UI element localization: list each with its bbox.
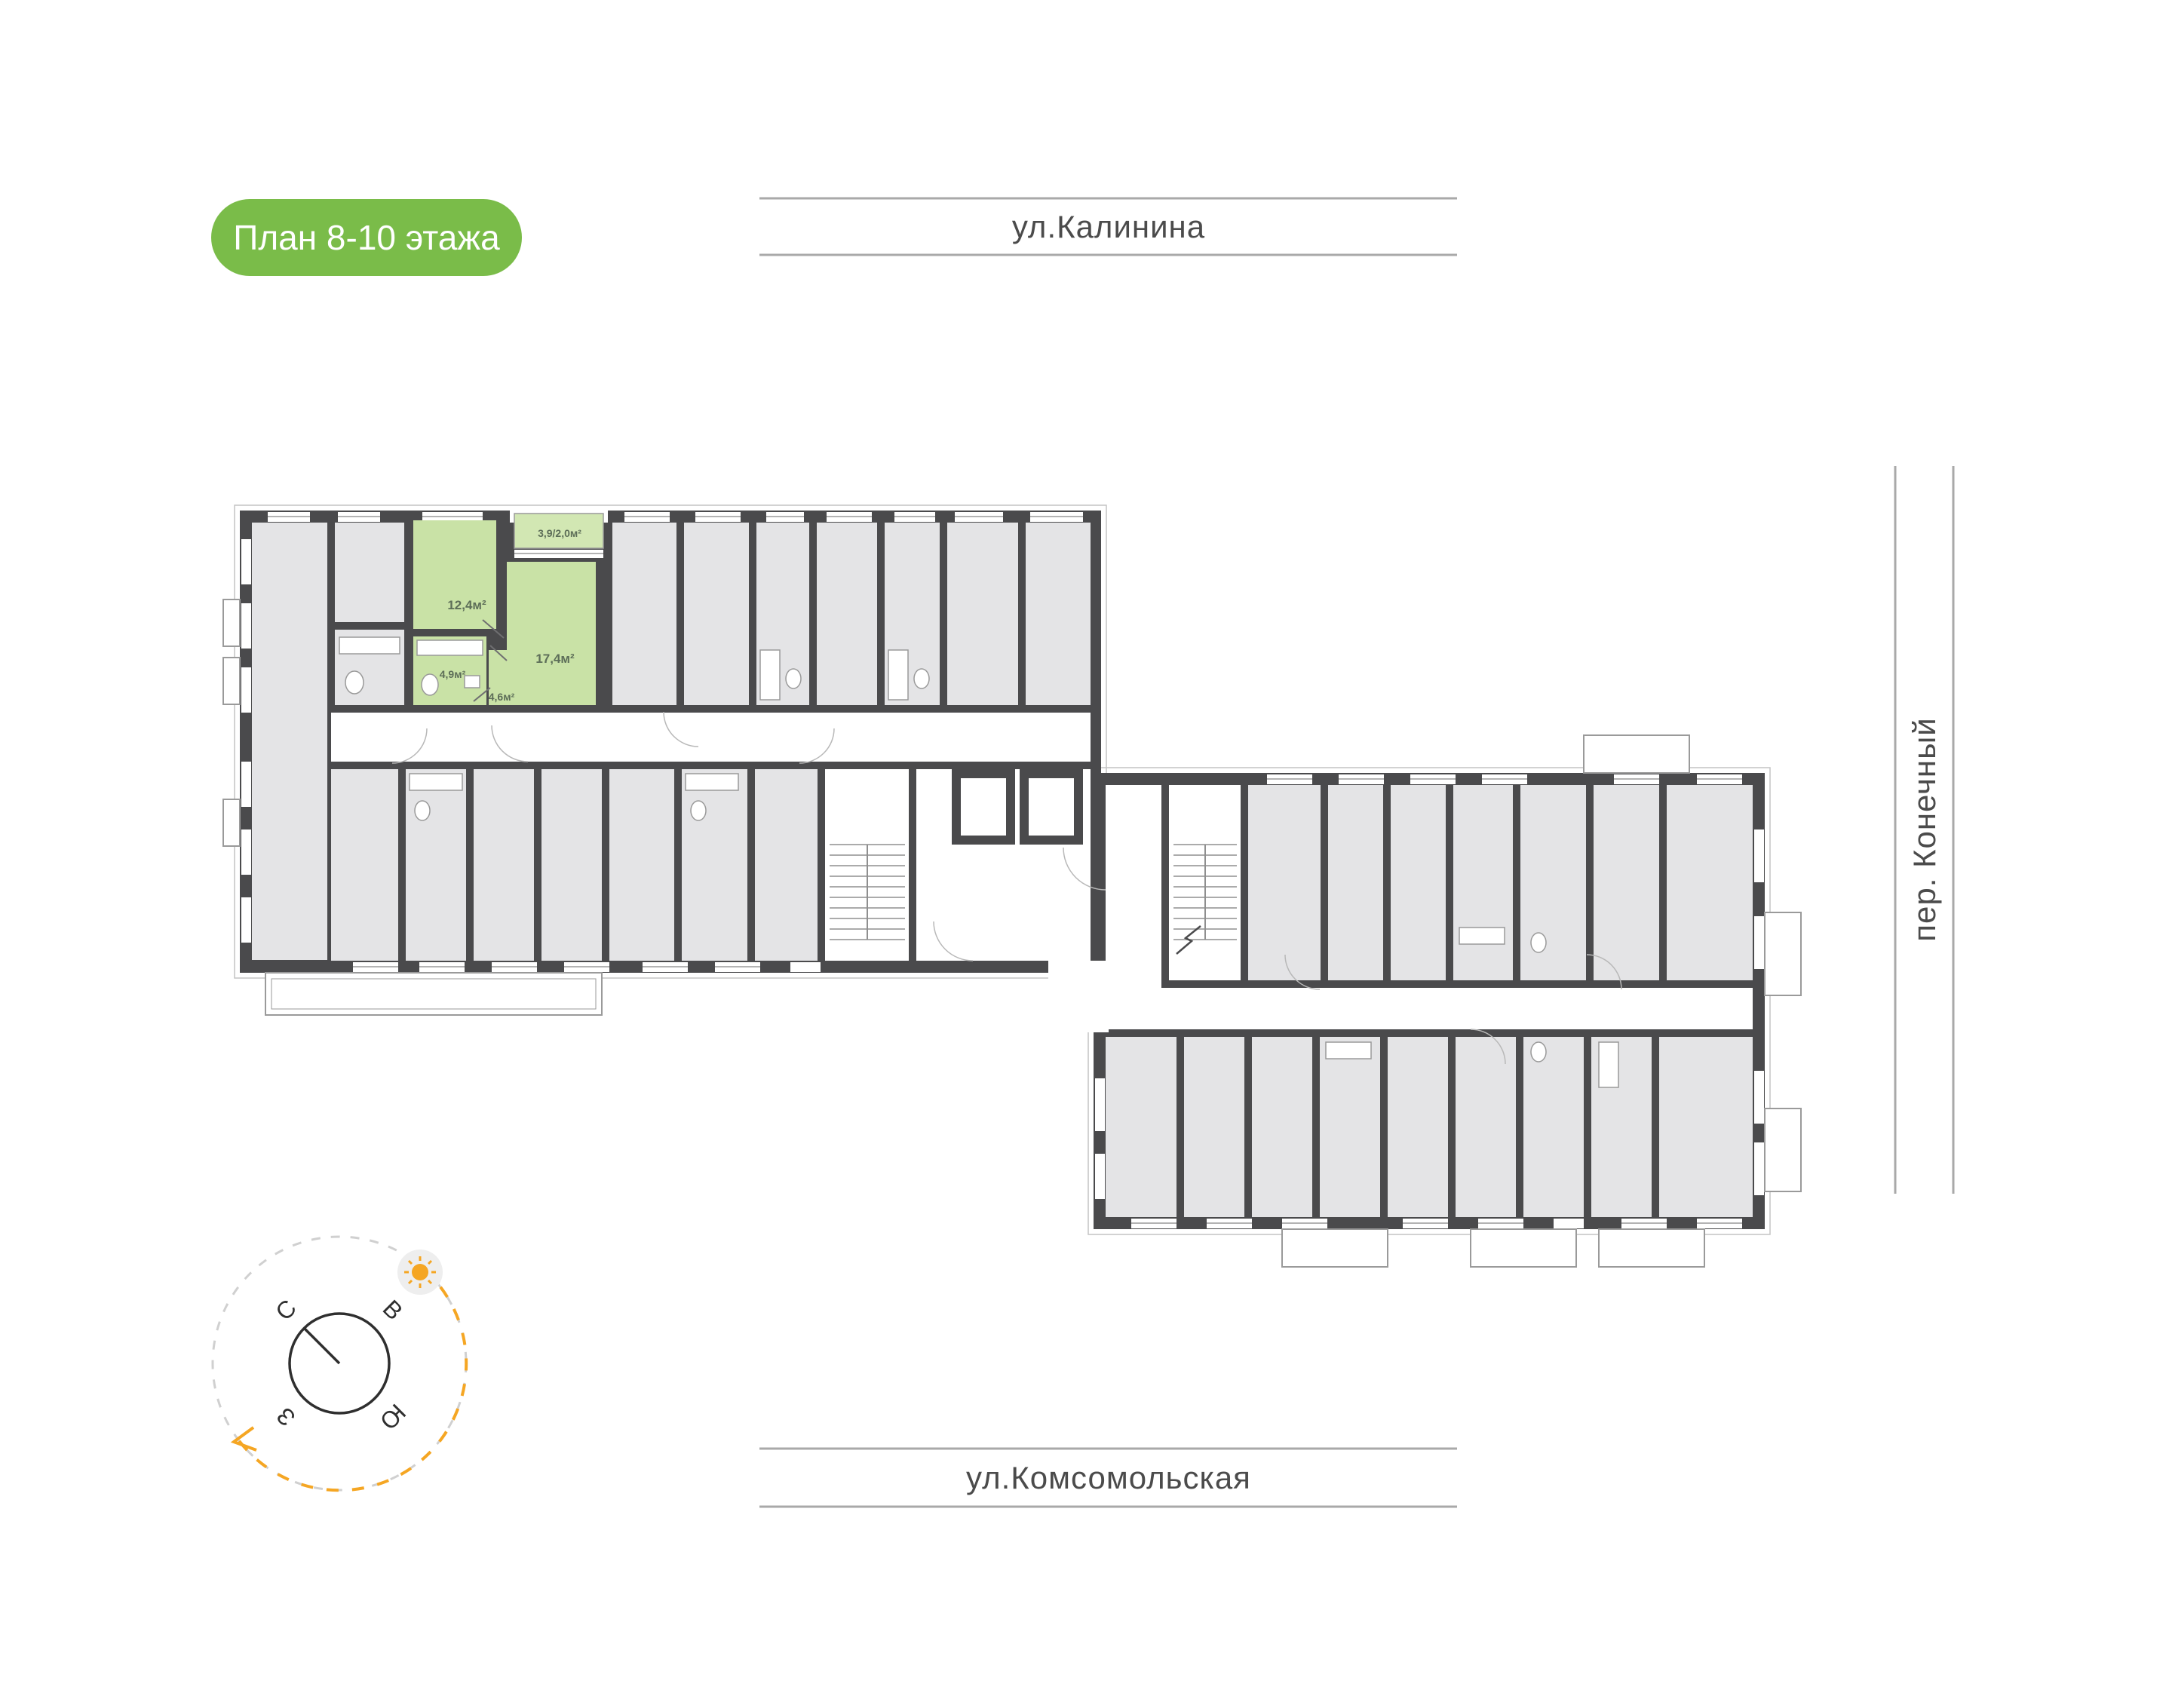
room	[1026, 523, 1091, 705]
room	[1456, 1037, 1516, 1217]
room	[1667, 785, 1753, 980]
left-corridor	[331, 713, 1091, 762]
elevator-cab	[961, 778, 1006, 836]
room	[817, 523, 877, 705]
balcony	[1471, 1229, 1576, 1267]
balcony	[1765, 912, 1801, 995]
room	[1320, 1037, 1380, 1217]
room	[947, 523, 1018, 705]
balcony	[1765, 1109, 1801, 1191]
bathtub	[1599, 1042, 1618, 1087]
street-komsomolskaya-label: ул.Комсомольская	[966, 1460, 1251, 1495]
balcony	[223, 599, 240, 646]
toilet	[786, 669, 801, 688]
room	[1184, 1037, 1244, 1217]
room	[1106, 1037, 1176, 1217]
lobby-passage	[1048, 961, 1109, 1032]
room	[1594, 785, 1659, 980]
room	[252, 523, 327, 960]
street-kalinina: ул.Калинина	[759, 198, 1457, 255]
room-area-label: 12,4м²	[447, 598, 486, 612]
balcony	[223, 799, 240, 846]
room	[684, 523, 749, 705]
room	[1328, 785, 1383, 980]
toilet	[415, 801, 430, 820]
room	[1520, 785, 1586, 980]
toilet	[914, 669, 929, 688]
bathtub	[1326, 1042, 1371, 1059]
room-area-label: 4,6м²	[489, 691, 515, 703]
room-area-label: 4,9м²	[440, 668, 466, 680]
unit-room-living	[413, 520, 496, 629]
floor-badge-label: План 8-10 этажа	[233, 218, 500, 257]
sink	[465, 676, 480, 688]
room	[609, 769, 674, 961]
balcony	[223, 658, 240, 704]
toilet	[1531, 1042, 1546, 1062]
compass-arrow-icon	[234, 1427, 256, 1450]
compass-north-label: С	[270, 1294, 302, 1326]
street-konechny: пер. Конечный	[1895, 466, 1953, 1194]
room	[406, 769, 466, 961]
room	[541, 769, 602, 961]
room	[1453, 785, 1513, 980]
room	[612, 523, 676, 705]
toilet	[422, 674, 438, 695]
bathtub	[888, 650, 908, 700]
right-corridor	[1106, 988, 1753, 1029]
room	[1391, 785, 1446, 980]
room	[1252, 1037, 1312, 1217]
street-komsomolskaya: ул.Комсомольская	[759, 1449, 1457, 1507]
room	[335, 523, 404, 622]
compass-east-label: В	[378, 1295, 409, 1326]
compass-south-label: Ю	[375, 1399, 411, 1435]
room	[1523, 1037, 1584, 1217]
street-konechny-label: пер. Конечный	[1907, 717, 1942, 942]
building: 12,4м² 17,4м² 4,9м² 4,6м² 3,9/2,0м²	[223, 505, 1801, 1267]
elevator-cab	[1029, 778, 1074, 836]
room	[755, 769, 818, 961]
bathtub	[410, 774, 462, 790]
balcony	[1584, 735, 1689, 773]
toilet	[345, 671, 364, 694]
balcony	[1282, 1229, 1388, 1267]
bathtub	[760, 650, 780, 700]
street-kalinina-label: ул.Калинина	[1012, 209, 1205, 244]
room	[331, 769, 398, 961]
room	[1388, 1037, 1448, 1217]
bathtub	[1459, 928, 1505, 944]
compass-west-label: З	[271, 1402, 300, 1431]
room	[1659, 1037, 1753, 1217]
toilet	[691, 801, 706, 820]
room-area-label: 17,4м²	[535, 652, 575, 666]
room-area-label: 3,9/2,0м²	[538, 527, 581, 539]
toilet	[1531, 933, 1546, 952]
room	[1248, 785, 1321, 980]
bathtub	[339, 637, 400, 654]
balcony	[1599, 1229, 1704, 1267]
room	[474, 769, 534, 961]
room	[682, 769, 747, 961]
floor-plan-canvas: План 8-10 этажа ул.Калинина ул.Комсомоль…	[0, 0, 2172, 1704]
bathtub	[417, 640, 483, 655]
floor-plan-page: План 8-10 этажа ул.Калинина ул.Комсомоль…	[0, 0, 2172, 1704]
floor-badge: План 8-10 этажа	[211, 199, 522, 276]
bathtub	[686, 774, 738, 790]
compass: С В Ю З	[213, 1237, 466, 1490]
